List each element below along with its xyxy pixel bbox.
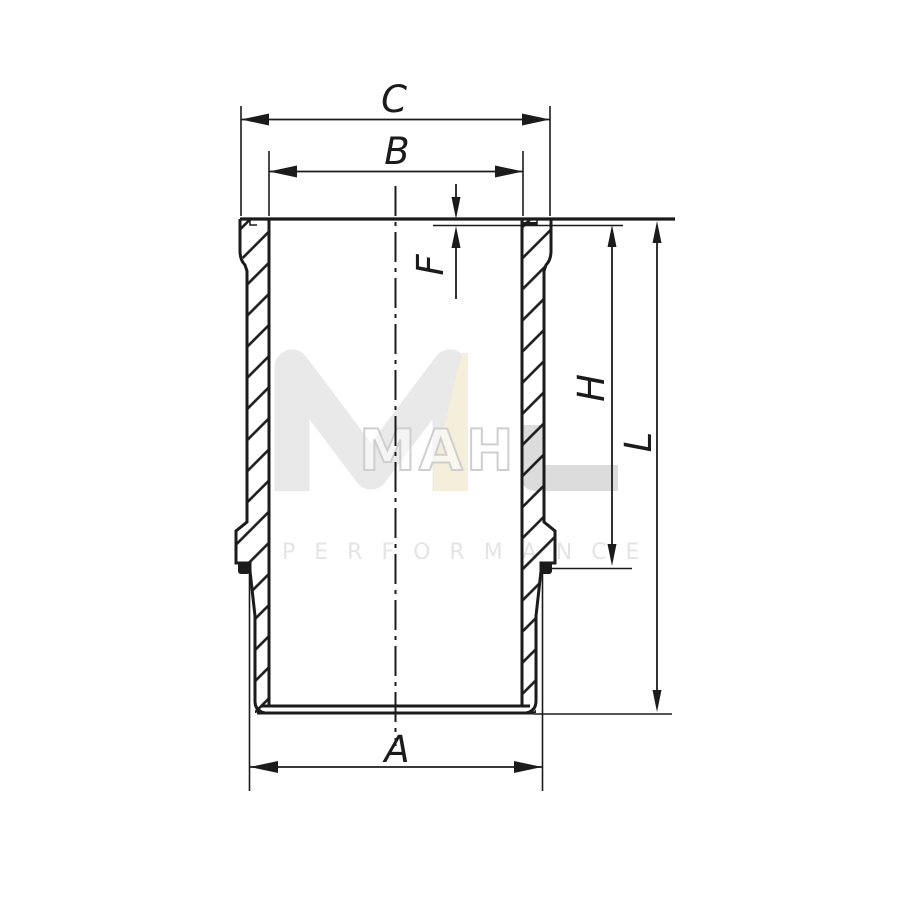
arrow-left bbox=[241, 114, 269, 126]
left-step-corner bbox=[238, 562, 250, 574]
left-wall-hatching bbox=[236, 219, 269, 713]
watermark-tagline: PERFORMANCE bbox=[282, 540, 658, 565]
dimension-f: F bbox=[409, 184, 461, 299]
dimension-label-a: A bbox=[382, 728, 409, 771]
dimension-label-b: B bbox=[384, 130, 409, 173]
dimension-h: H bbox=[545, 225, 632, 569]
arrow-right bbox=[514, 761, 542, 773]
arrow-left bbox=[250, 761, 278, 773]
arrow-up bbox=[653, 221, 662, 243]
technical-drawing-page: MAH PERFORMANCE bbox=[0, 0, 900, 900]
watermark-outline-letters: MAH bbox=[359, 418, 517, 484]
dimension-label-c: C bbox=[381, 78, 407, 121]
arrow-right bbox=[495, 166, 523, 178]
arrow-down bbox=[653, 690, 662, 712]
cylinder-liner-diagram: MAH PERFORMANCE bbox=[0, 0, 900, 900]
dimension-label-l: L bbox=[617, 432, 660, 453]
arrow-right bbox=[522, 114, 550, 126]
dimension-label-h: H bbox=[570, 374, 613, 402]
arrow-down bbox=[452, 197, 461, 219]
dimension-label-f: F bbox=[409, 254, 452, 276]
arrow-left bbox=[269, 166, 297, 178]
arrow-up bbox=[452, 226, 461, 248]
arrow-up bbox=[608, 225, 617, 247]
